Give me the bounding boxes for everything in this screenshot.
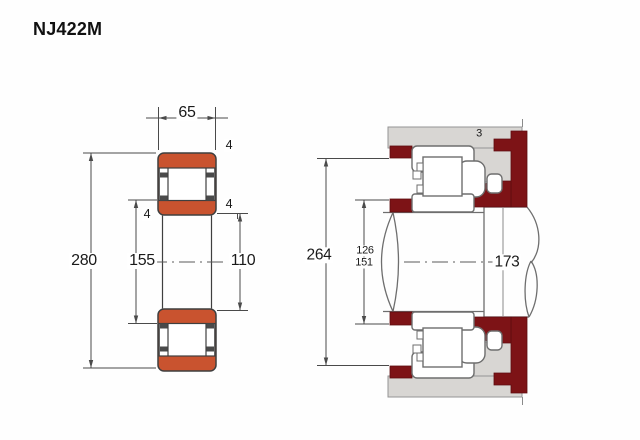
dim-label-bore-diameter: 110 [229, 253, 258, 269]
dim-label-shaft-abutment-max: 151 [353, 258, 374, 269]
dim-label-flange-diameter: 155 [127, 253, 157, 269]
dim-label-outer-diameter: 280 [69, 253, 99, 269]
dim-label-axial-clearance: 3 [474, 129, 484, 140]
dim-label-width: 65 [176, 105, 197, 121]
datasheet-drawing: NJ422M [0, 0, 640, 440]
shaft-break-left [382, 213, 399, 312]
dim-label-shaft-shoulder: 173 [493, 254, 522, 270]
cage-bar [160, 196, 168, 201]
mounting-half-section-mirrored [388, 312, 527, 405]
cage-bar [207, 173, 215, 178]
technical-drawing [0, 0, 640, 440]
bearing-half-section-mirrored [158, 309, 216, 371]
locating-groove [487, 174, 502, 193]
shaft-break-right [525, 207, 539, 317]
dim-label-housing-abutment: 264 [305, 247, 334, 263]
dim-label-chamfer-right: 4 [224, 198, 235, 211]
mounting-half-section [388, 119, 527, 212]
dim-label-chamfer-outer: 4 [224, 139, 235, 152]
dim-label-chamfer-left: 4 [142, 208, 153, 221]
shaft-shoulder-ring [390, 199, 412, 212]
housing-shoulder-ring [390, 146, 412, 158]
cage-bar [207, 196, 215, 201]
cage-bar [160, 173, 168, 178]
roller [423, 157, 462, 196]
cage-mark [417, 185, 423, 193]
cage-mark [417, 163, 423, 171]
bearing-half-section [158, 153, 216, 215]
dim-label-shaft-abutment-min: 126 [354, 246, 375, 257]
outer-ring-rib [413, 171, 421, 179]
